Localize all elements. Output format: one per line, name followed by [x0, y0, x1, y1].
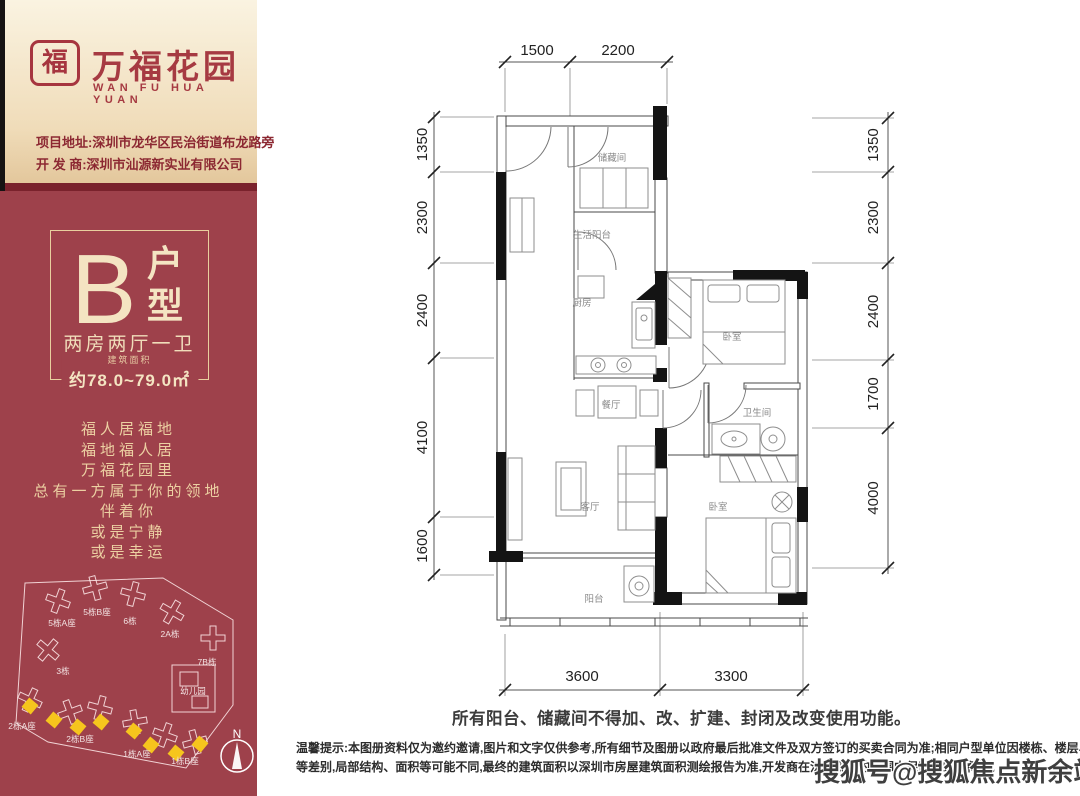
- watermark: 搜狐号@搜狐焦点新余站: [814, 752, 1080, 789]
- dim-right-1350: 1350: [865, 128, 882, 161]
- site-map: 5栋A座 5栋B座 6栋 2A栋 7B栋 3栋 幼儿园 2栋A座 2栋B座 1栋…: [0, 572, 257, 796]
- room-label-dining: 餐厅: [601, 399, 621, 411]
- dim-left-1600: 1600: [414, 529, 431, 562]
- dim-right-2300: 2300: [865, 201, 882, 234]
- dim-right-1700: 1700: [865, 377, 882, 410]
- brand-name: 万福花园: [92, 40, 240, 88]
- compass-north-label: N: [233, 727, 242, 741]
- site-buildings: [14, 573, 225, 756]
- dim-left-2400: 2400: [414, 294, 431, 327]
- dim-top-1500: 1500: [520, 42, 553, 59]
- dim-top-2200: 2200: [601, 42, 634, 59]
- poem-line: 伴着你: [0, 502, 257, 523]
- room-label-storage: 储藏间: [598, 152, 627, 164]
- dim-bottom-3600: 3600: [565, 668, 598, 685]
- disclaimer-label: 温馨提示:: [296, 741, 348, 755]
- unit-area-label: 建筑面积: [69, 353, 190, 366]
- room-label-bathroom: 卫生间: [743, 407, 772, 419]
- building-label: 2栋A座: [8, 721, 36, 731]
- poem-line: 或是幸运: [0, 543, 257, 564]
- building-label: 2栋B座: [66, 734, 94, 744]
- unit-type-char-2: 型: [143, 285, 187, 327]
- dim-right-4000: 4000: [865, 481, 882, 514]
- building-label: 1栋A座: [123, 749, 151, 759]
- project-info: 项目地址:深圳市龙华区民治街道布龙路旁 开 发 商:深圳市汕源新实业有限公司: [36, 132, 274, 176]
- divider-strip: [0, 183, 257, 191]
- brand-seal-icon: 福: [30, 40, 80, 86]
- project-developer: 开 发 商:深圳市汕源新实业有限公司: [36, 154, 274, 176]
- project-address: 项目地址:深圳市龙华区民治街道布龙路旁: [36, 132, 274, 154]
- dim-left-1350: 1350: [414, 128, 431, 161]
- brand-header: 福 万福花园 WAN FU HUA YUAN 项目地址:深圳市龙华区民治街道布龙…: [0, 0, 257, 183]
- poem-line: 万福花园里: [0, 461, 257, 482]
- usage-notice: 所有阳台、储藏间不得加、改、扩建、封闭及改变使用功能。: [452, 705, 892, 729]
- poem-line: 总有一方属于你的领地: [0, 482, 257, 503]
- building-label: 1栋B座: [171, 756, 199, 766]
- building-label: 5栋A座: [48, 618, 76, 628]
- dim-bottom-3300: 3300: [714, 668, 747, 685]
- unit-type-box: B 户 型 两房两厅一卫 建筑面积 约78.0~79.0㎡: [50, 230, 209, 380]
- compass-icon: N: [221, 727, 253, 772]
- left-edge-strip: [0, 0, 5, 191]
- room-label-balcony: 阳台: [584, 593, 603, 605]
- building-label: 7B栋: [198, 657, 217, 667]
- poem-block: 福人居福地 福地福人居 万福花园里 总有一方属于你的领地 伴着你 或是宁静 或是…: [0, 420, 257, 564]
- room-label-living: 客厅: [580, 501, 600, 513]
- poem-line: 福地福人居: [0, 441, 257, 462]
- dim-left-4100: 4100: [414, 421, 431, 454]
- poem-line: 福人居福地: [0, 420, 257, 441]
- highlighted-units: [22, 698, 209, 762]
- dim-right-2400: 2400: [865, 295, 882, 328]
- unit-letter: B: [71, 239, 136, 339]
- room-label-kitchen: 厨房: [572, 297, 591, 309]
- building-label: 幼儿园: [180, 686, 206, 696]
- unit-layout: 两房两厅一卫: [51, 329, 208, 356]
- unit-area-value: 约78.0~79.0㎡: [69, 366, 190, 391]
- room-label-life-balcony: 生活阳台: [573, 229, 611, 241]
- dim-left-2300: 2300: [414, 201, 431, 234]
- unit-area: 建筑面积 约78.0~79.0㎡: [61, 353, 198, 391]
- building-label: 2A栋: [161, 629, 180, 639]
- building-label: 3栋: [56, 666, 70, 676]
- building-label: 5栋B座: [83, 607, 111, 617]
- unit-type-char-1: 户: [143, 243, 187, 285]
- building-label: 6栋: [123, 616, 137, 626]
- unit-type-label: 户 型: [143, 243, 187, 327]
- site-building-labels: 5栋A座 5栋B座 6栋 2A栋 7B栋 3栋 幼儿园 2栋A座 2栋B座 1栋…: [8, 607, 217, 766]
- brand-name-en: WAN FU HUA YUAN: [93, 82, 257, 106]
- room-label-bedroom-2: 卧室: [708, 501, 727, 513]
- room-label-bedroom-1: 卧室: [722, 331, 741, 343]
- poem-line: 或是宁静: [0, 523, 257, 544]
